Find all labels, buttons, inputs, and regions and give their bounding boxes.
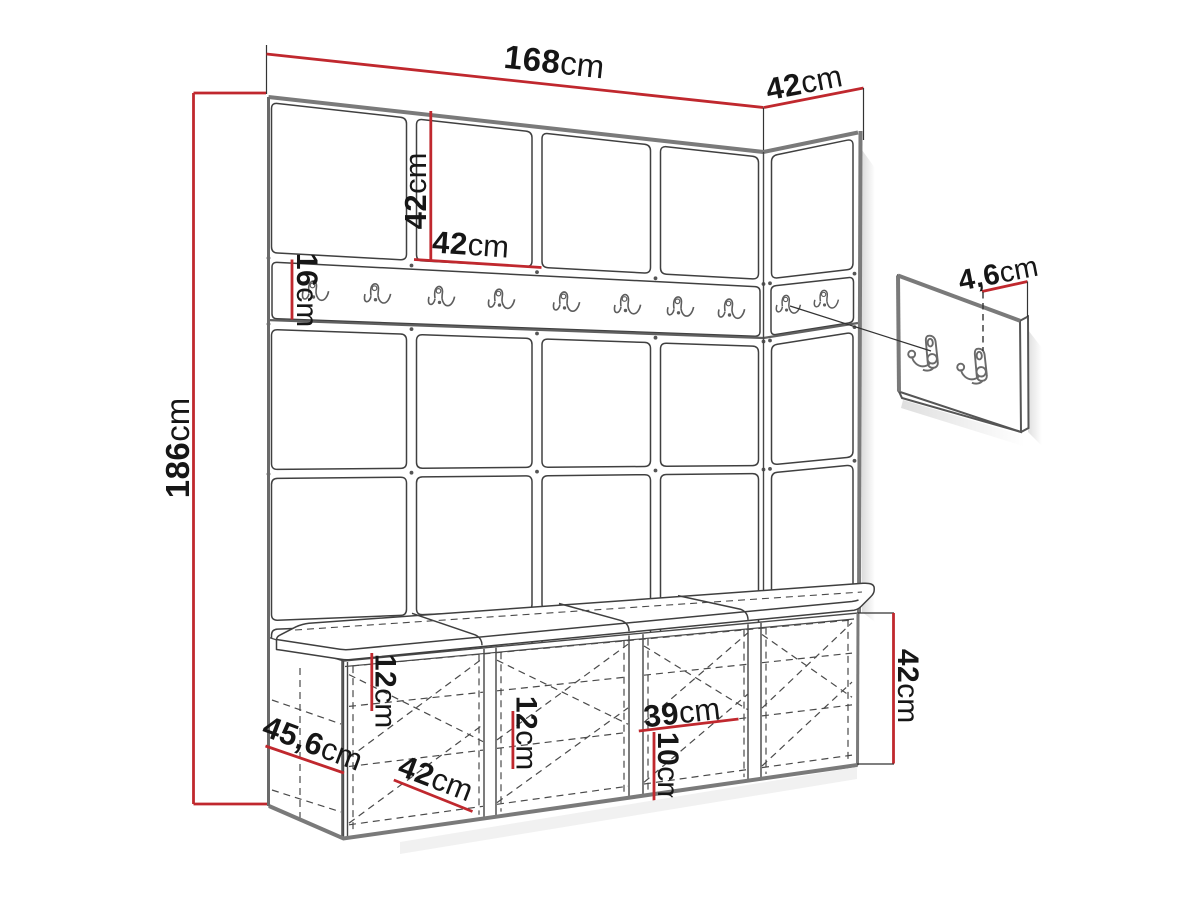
- svg-text:12cm: 12cm: [369, 654, 402, 728]
- svg-text:42cm: 42cm: [398, 153, 433, 230]
- svg-text:42cm: 42cm: [431, 224, 510, 264]
- svg-text:186cm: 186cm: [159, 398, 196, 499]
- svg-text:42cm: 42cm: [891, 649, 924, 723]
- svg-text:10cm: 10cm: [651, 732, 684, 806]
- svg-text:12cm: 12cm: [510, 696, 543, 770]
- svg-text:16cm: 16cm: [290, 253, 323, 327]
